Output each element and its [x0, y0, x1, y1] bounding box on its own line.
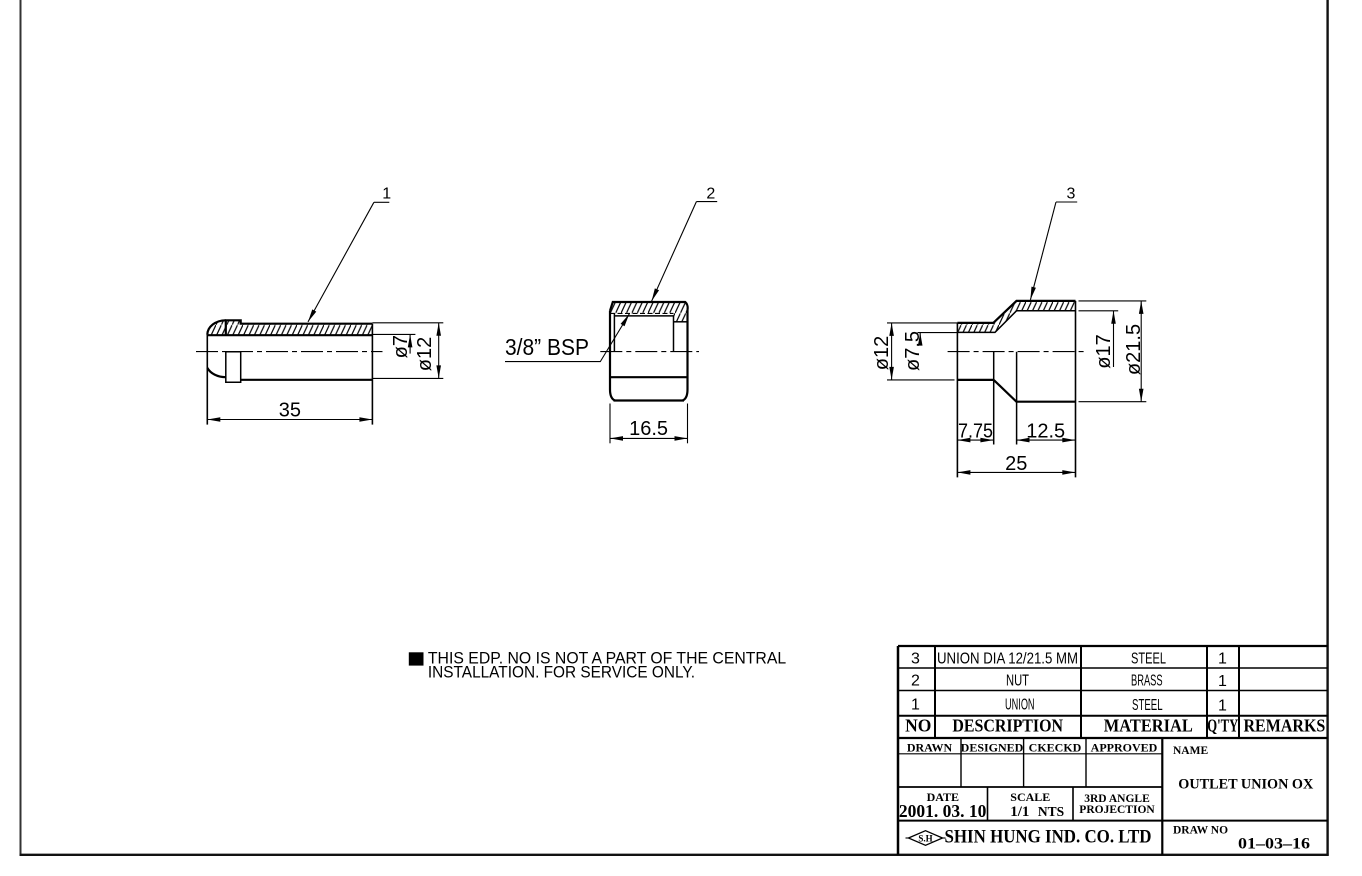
- svg-text:Q'TY: Q'TY: [1207, 716, 1238, 736]
- svg-text:ø7.5: ø7.5: [902, 331, 924, 371]
- svg-text:NO: NO: [905, 716, 931, 736]
- svg-text:BRASS: BRASS: [1131, 672, 1163, 689]
- svg-text:ø17: ø17: [1093, 334, 1115, 368]
- svg-text:ø12: ø12: [871, 336, 893, 370]
- svg-text:STEEL: STEEL: [1131, 651, 1166, 668]
- svg-text:1: 1: [1218, 673, 1227, 690]
- svg-text:1: 1: [911, 697, 920, 714]
- svg-text:1: 1: [1218, 698, 1227, 715]
- svg-text:2: 2: [706, 185, 715, 202]
- svg-text:REMARKS: REMARKS: [1244, 716, 1326, 736]
- svg-text:3: 3: [1067, 186, 1076, 203]
- svg-text:1: 1: [1218, 651, 1227, 668]
- svg-text:SCALE: SCALE: [1010, 790, 1050, 804]
- svg-text:01–03–16: 01–03–16: [1238, 835, 1310, 852]
- svg-text:1/1: 1/1: [1010, 804, 1029, 820]
- svg-text:UNION: UNION: [1005, 697, 1035, 714]
- svg-text:ø21.5: ø21.5: [1123, 324, 1145, 375]
- svg-text:S.H: S.H: [918, 833, 932, 843]
- svg-text:UNION DIA 12/21.5 MM: UNION DIA 12/21.5 MM: [937, 651, 1078, 668]
- svg-text:12.5: 12.5: [1026, 421, 1065, 443]
- svg-text:3: 3: [911, 651, 920, 668]
- svg-text:NAME: NAME: [1173, 745, 1208, 757]
- svg-text:DESCRIPTION: DESCRIPTION: [952, 716, 1063, 736]
- svg-text:3/8” BSP: 3/8” BSP: [505, 334, 589, 360]
- svg-text:16.5: 16.5: [629, 418, 668, 440]
- svg-text:2001. 03. 10: 2001. 03. 10: [899, 801, 987, 821]
- svg-text:DRAWN: DRAWN: [907, 741, 953, 755]
- svg-text:1: 1: [382, 186, 391, 203]
- svg-text:ø12: ø12: [414, 337, 436, 371]
- svg-text:25: 25: [1005, 453, 1027, 475]
- svg-text:DESIGNED: DESIGNED: [961, 741, 1024, 755]
- svg-text:2: 2: [911, 672, 920, 689]
- svg-text:OUTLET UNION OX: OUTLET UNION OX: [1178, 776, 1313, 792]
- svg-text:CKECKD: CKECKD: [1029, 741, 1082, 755]
- svg-text:35: 35: [279, 399, 301, 421]
- svg-text:NTS: NTS: [1038, 804, 1064, 819]
- svg-text:STEEL: STEEL: [1132, 697, 1163, 714]
- svg-text:ø7: ø7: [390, 335, 412, 358]
- svg-text:DRAW NO: DRAW NO: [1173, 824, 1228, 836]
- svg-text:INSTALLATION. FOR SERVICE ONLY: INSTALLATION. FOR SERVICE ONLY.: [428, 663, 695, 681]
- svg-text:SHIN HUNG IND. CO. LTD: SHIN HUNG IND. CO. LTD: [945, 827, 1152, 848]
- svg-text:7.75: 7.75: [958, 421, 993, 443]
- svg-text:PROJECTION: PROJECTION: [1079, 804, 1155, 816]
- svg-text:NUT: NUT: [1006, 672, 1029, 689]
- svg-text:APPROVED: APPROVED: [1091, 741, 1158, 755]
- svg-text:MATERIAL: MATERIAL: [1104, 716, 1193, 736]
